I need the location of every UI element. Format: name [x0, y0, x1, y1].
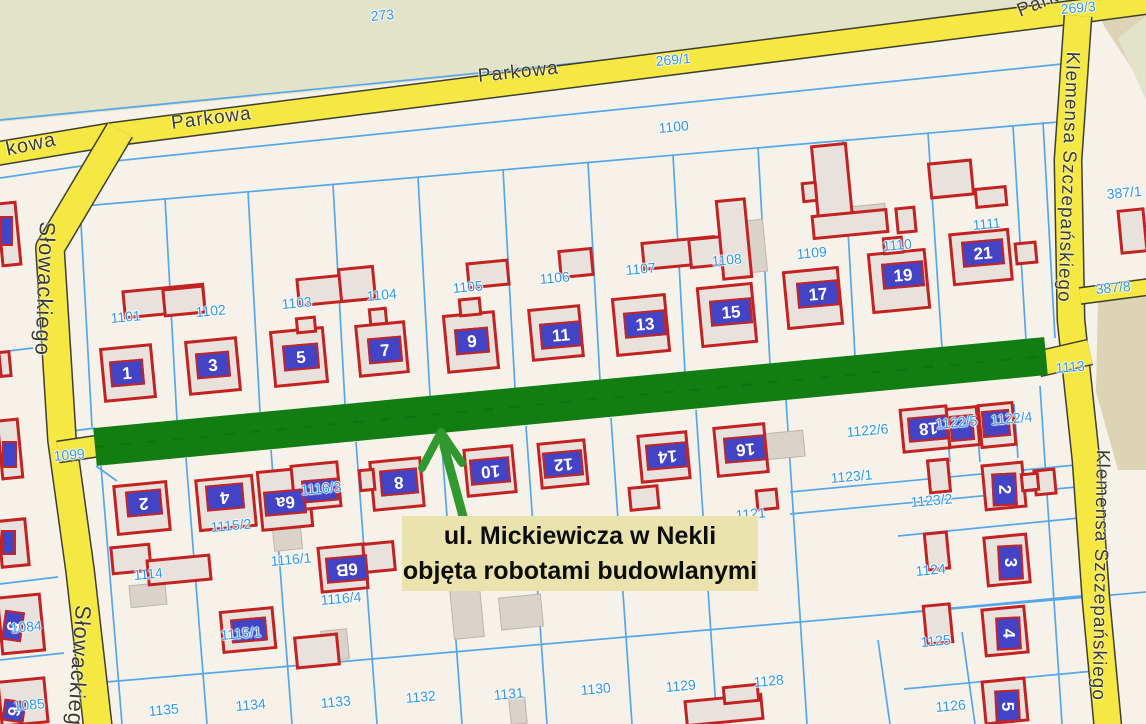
building-outlined: [339, 266, 376, 301]
building-gray: [763, 430, 805, 460]
building-gray: [450, 587, 485, 640]
building-outlined: [946, 407, 980, 448]
building-outlined: [756, 489, 778, 510]
parcel-boundary-line: [60, 122, 1058, 208]
building-outlined: [723, 684, 758, 703]
building-outlined: [369, 308, 386, 324]
building-outlined: [147, 555, 211, 585]
building-outlined: [883, 237, 902, 254]
arrow-head-icon: [441, 432, 444, 446]
building-outlined: [0, 678, 48, 724]
building-outlined: [559, 249, 593, 278]
building-outlined: [629, 486, 659, 511]
building-outlined: [982, 678, 1028, 724]
building-outlined: [359, 469, 375, 490]
building-outlined: [928, 160, 973, 198]
parcel-boundary-line: [96, 466, 117, 481]
building-outlined: [950, 229, 1013, 284]
parcel-boundary-line: [80, 205, 92, 427]
building-outlined: [295, 634, 340, 668]
building-outlined: [163, 286, 205, 316]
building-outlined: [196, 475, 257, 530]
building-outlined: [714, 424, 768, 477]
building-gray: [499, 594, 544, 630]
building-outlined: [612, 295, 669, 356]
parcel-boundary-line: [878, 640, 890, 724]
building-outlined: [101, 345, 156, 402]
building-outlined: [186, 338, 241, 395]
building-gray: [509, 697, 527, 724]
building-outlined: [464, 446, 516, 496]
parcel-boundary-line: [962, 632, 975, 724]
building-outlined: [0, 519, 29, 567]
building-outlined: [982, 606, 1028, 656]
building-outlined: [975, 187, 1007, 208]
building-outlined: [538, 440, 588, 488]
building-outlined: [370, 458, 424, 511]
building-outlined: [900, 406, 950, 452]
building-outlined: [868, 249, 929, 312]
building-outlined: [0, 594, 45, 654]
building-outlined: [1015, 242, 1037, 264]
building-outlined: [296, 317, 315, 333]
tan-east: [1096, 292, 1146, 470]
building-outlined: [529, 306, 584, 361]
building-outlined: [982, 462, 1026, 510]
building-outlined: [111, 544, 151, 574]
building-outlined: [459, 298, 480, 316]
building-outlined: [443, 312, 498, 373]
map-graphics: [0, 0, 1146, 724]
map-canvas[interactable]: 13579111315171921246a6B81012141618234556…: [0, 0, 1146, 724]
building-outlined: [356, 322, 409, 376]
building-outlined: [0, 419, 23, 479]
building-outlined: [783, 268, 842, 329]
building-outlined: [923, 604, 953, 644]
parcel-boundary-line: [1043, 122, 1055, 338]
construction-annotation: ul. Mickiewicza w Nekli objęta robotami …: [402, 516, 758, 591]
building-outlined: [896, 207, 916, 233]
building-outlined: [0, 202, 21, 265]
building-outlined: [1118, 209, 1146, 253]
parcel-boundary-line: [248, 191, 260, 412]
road-stub-1099: [58, 446, 98, 452]
parcel-boundary-line: [418, 177, 430, 396]
building-outlined: [978, 402, 1016, 447]
building-outlined: [363, 542, 396, 573]
building-outlined: [984, 534, 1030, 586]
building-outlined: [697, 284, 756, 347]
building-outlined: [114, 482, 170, 535]
building-outlined: [291, 462, 341, 510]
building-outlined: [802, 182, 817, 201]
road-387-8: [1080, 287, 1146, 296]
building-outlined: [812, 144, 853, 221]
annotation-line2: objęta robotami budowlanymi: [403, 554, 757, 589]
building-outlined: [924, 532, 949, 570]
parcel-boundary-line: [0, 577, 58, 584]
building-outlined: [0, 352, 11, 377]
annotation-line1: ul. Mickiewicza w Nekli: [444, 519, 716, 554]
building-outlined: [220, 608, 276, 653]
building-outlined: [271, 328, 328, 387]
building-outlined: [1021, 473, 1038, 490]
parcel-boundary-line: [1040, 386, 1062, 724]
building-outlined: [928, 459, 951, 493]
building-outlined: [638, 432, 690, 482]
building-outlined: [318, 544, 368, 592]
building-outlined: [716, 199, 751, 279]
building-outlined: [467, 260, 509, 288]
parcel-boundary-line: [1013, 126, 1026, 340]
